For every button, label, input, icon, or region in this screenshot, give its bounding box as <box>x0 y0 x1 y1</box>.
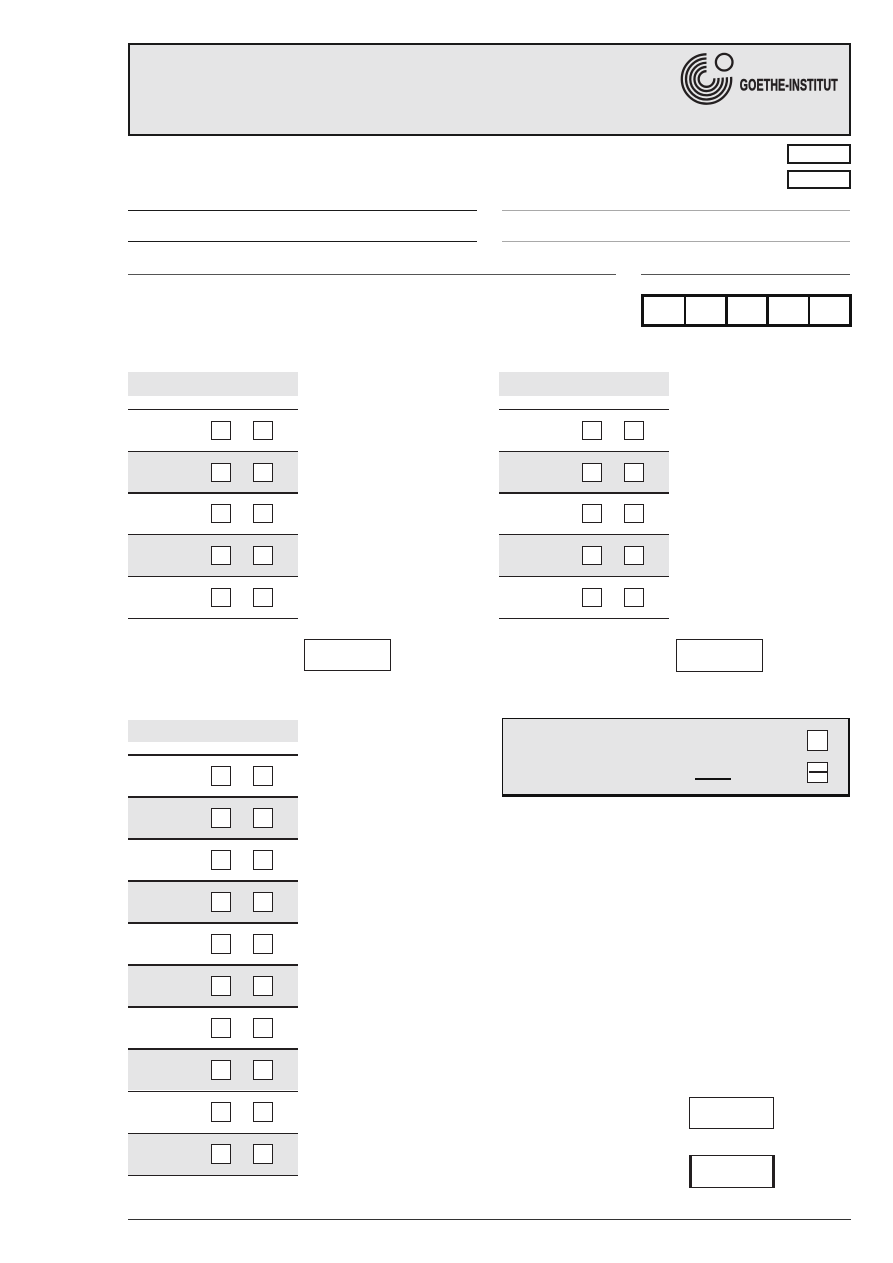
svg-text:GOETHE-INSTITUT: GOETHE-INSTITUT <box>740 75 838 94</box>
